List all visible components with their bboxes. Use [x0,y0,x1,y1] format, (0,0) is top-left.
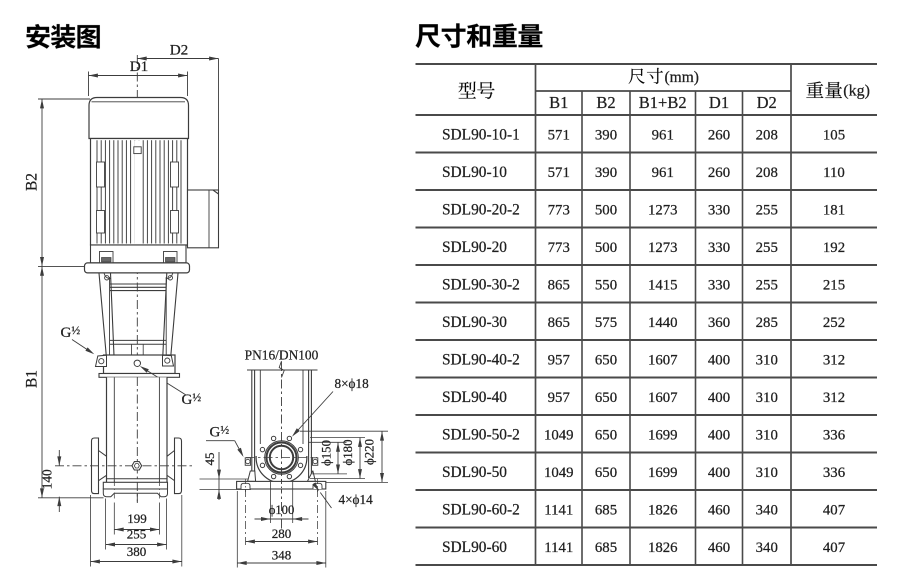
svg-text:181: 181 [823,203,845,219]
svg-text:407: 407 [823,540,845,556]
svg-text:SDL90-10: SDL90-10 [442,164,507,181]
svg-text:ϕ180: ϕ180 [341,440,355,466]
svg-text:336: 336 [823,465,845,481]
svg-text:255: 255 [756,203,778,219]
svg-text:280: 280 [272,526,292,541]
svg-text:575: 575 [595,315,617,331]
svg-text:B1: B1 [549,93,568,112]
svg-text:1607: 1607 [648,390,678,406]
svg-text:685: 685 [595,503,617,519]
svg-text:1049: 1049 [544,465,574,481]
svg-text:957: 957 [548,353,570,369]
svg-text:255: 255 [127,527,147,542]
svg-text:B1+B2: B1+B2 [639,93,687,112]
svg-text:1415: 1415 [648,278,678,294]
svg-text:SDL90-30: SDL90-30 [442,314,507,331]
svg-text:4×ϕ14: 4×ϕ14 [339,492,374,507]
svg-text:400: 400 [708,465,730,481]
svg-text:SDL90-60: SDL90-60 [442,539,507,556]
svg-text:1607: 1607 [648,353,678,369]
svg-text:571: 571 [548,165,570,181]
svg-text:650: 650 [595,465,617,481]
svg-text:400: 400 [708,428,730,444]
svg-text:400: 400 [708,390,730,406]
svg-text:110: 110 [823,165,845,181]
svg-text:1826: 1826 [648,503,678,519]
svg-text:380: 380 [127,544,147,559]
svg-text:773: 773 [548,240,570,256]
svg-text:255: 255 [756,278,778,294]
svg-text:B1: B1 [24,370,41,388]
svg-text:957: 957 [548,390,570,406]
svg-text:1049: 1049 [544,428,574,444]
svg-text:390: 390 [595,128,617,144]
svg-text:G: G [210,425,221,441]
svg-text:105: 105 [823,128,845,144]
svg-text:D1: D1 [709,93,729,112]
svg-text:G: G [61,325,72,341]
svg-text:1141: 1141 [544,503,573,519]
svg-text:1440: 1440 [648,315,678,331]
svg-text:330: 330 [708,278,730,294]
svg-text:G: G [182,392,193,408]
svg-text:460: 460 [708,540,730,556]
svg-text:400: 400 [708,353,730,369]
svg-text:650: 650 [595,390,617,406]
svg-text:B2: B2 [596,93,615,112]
svg-text:45: 45 [202,453,217,466]
svg-text:SDL90-40: SDL90-40 [442,389,507,406]
svg-text:1826: 1826 [648,540,678,556]
svg-text:310: 310 [756,465,778,481]
svg-text:208: 208 [756,165,778,181]
svg-text:SDL90-50: SDL90-50 [442,464,507,481]
svg-text:685: 685 [595,540,617,556]
svg-text:192: 192 [823,240,845,256]
svg-text:348: 348 [272,548,292,563]
svg-text:SDL90-20: SDL90-20 [442,239,507,256]
svg-text:(kg): (kg) [843,83,870,100]
svg-text:B2: B2 [24,173,41,191]
svg-text:D1: D1 [130,58,149,75]
svg-text:310: 310 [756,390,778,406]
svg-text:571: 571 [548,128,570,144]
svg-text:ϕ150: ϕ150 [320,440,334,466]
svg-text:SDL90-40-2: SDL90-40-2 [442,352,520,369]
svg-text:½: ½ [221,425,230,437]
svg-text:SDL90-60-2: SDL90-60-2 [442,502,520,519]
svg-text:252: 252 [823,315,845,331]
svg-text:255: 255 [756,240,778,256]
svg-text:D2: D2 [170,42,189,59]
svg-text:340: 340 [756,540,778,556]
svg-text:½: ½ [193,392,202,404]
svg-text:260: 260 [708,165,730,181]
svg-text:336: 336 [823,428,845,444]
svg-text:ϕ220: ϕ220 [363,439,377,465]
svg-text:PN16/DN100: PN16/DN100 [245,347,319,362]
svg-text:260: 260 [708,128,730,144]
svg-text:360: 360 [708,315,730,331]
svg-text:215: 215 [823,278,845,294]
svg-text:½: ½ [72,325,81,337]
svg-text:SDL90-10-1: SDL90-10-1 [442,127,520,144]
svg-text:865: 865 [548,278,570,294]
svg-text:8×ϕ18: 8×ϕ18 [335,376,370,391]
svg-text:199: 199 [127,511,147,526]
svg-text:865: 865 [548,315,570,331]
svg-text:550: 550 [595,278,617,294]
svg-text:773: 773 [548,203,570,219]
svg-text:D2: D2 [757,93,777,112]
svg-text:1699: 1699 [648,465,678,481]
svg-text:1699: 1699 [648,428,678,444]
svg-text:310: 310 [756,353,778,369]
svg-text:SDL90-20-2: SDL90-20-2 [442,202,520,219]
svg-text:208: 208 [756,128,778,144]
svg-text:500: 500 [595,240,617,256]
svg-text:312: 312 [823,390,845,406]
svg-text:140: 140 [40,469,55,489]
svg-text:407: 407 [823,503,845,519]
svg-text:961: 961 [652,128,674,144]
svg-text:330: 330 [708,240,730,256]
svg-text:310: 310 [756,428,778,444]
svg-text:330: 330 [708,203,730,219]
svg-text:1141: 1141 [544,540,573,556]
svg-text:285: 285 [756,315,778,331]
svg-text:312: 312 [823,353,845,369]
svg-text:650: 650 [595,353,617,369]
svg-text:(mm): (mm) [665,69,699,86]
svg-text:SDL90-50-2: SDL90-50-2 [442,427,520,444]
svg-text:ϕ100: ϕ100 [269,503,295,517]
svg-text:961: 961 [652,165,674,181]
svg-text:SDL90-30-2: SDL90-30-2 [442,277,520,294]
svg-text:1273: 1273 [648,203,678,219]
svg-text:650: 650 [595,428,617,444]
svg-text:500: 500 [595,203,617,219]
svg-text:340: 340 [756,503,778,519]
svg-text:460: 460 [708,503,730,519]
svg-text:1273: 1273 [648,240,678,256]
svg-text:390: 390 [595,165,617,181]
